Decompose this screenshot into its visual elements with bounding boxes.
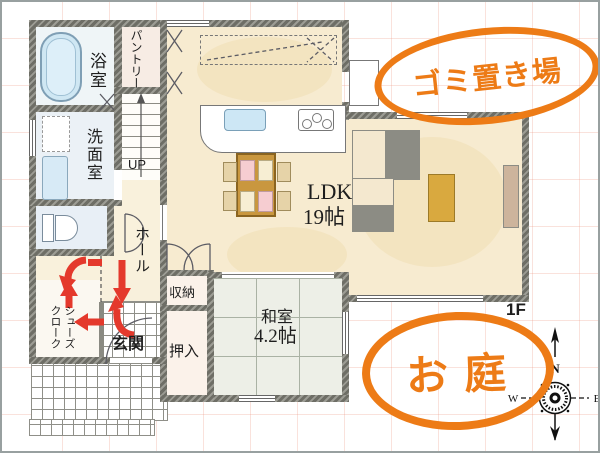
storage-label: 収納 [169, 282, 195, 301]
bath-label: 浴室 [84, 52, 109, 90]
stairs-up-label: UP [128, 157, 146, 172]
bath-door-x-mark [100, 94, 114, 110]
floor-label: 1F [506, 300, 526, 320]
washroom-label: 洗面室 [80, 128, 104, 182]
storage-door-arc [184, 244, 210, 270]
shoes-cloak-label: シューズクローク [48, 305, 76, 359]
garden-label: お庭 [393, 338, 523, 403]
japanese-room-size: 4.2帖 [254, 321, 297, 348]
storage-door-arc [167, 244, 193, 270]
hall-label: ホール [131, 226, 152, 274]
folding-door-x-mark [167, 30, 182, 94]
floor-plan-canvas: N W E 浴室 パントリー 洗面室 UP ホール シューズクローク 玄関 収納… [0, 0, 600, 453]
cupboard-diagonal [207, 42, 322, 60]
ldk-size: 19帖 [303, 201, 345, 231]
entrance-label: 玄関 [112, 330, 144, 354]
compass-east-label: E [594, 393, 600, 405]
pantry-label: パントリー [128, 29, 145, 89]
closet-label: 押入 [169, 340, 199, 361]
garbage-area-label: ゴミ置き場 [410, 47, 564, 104]
